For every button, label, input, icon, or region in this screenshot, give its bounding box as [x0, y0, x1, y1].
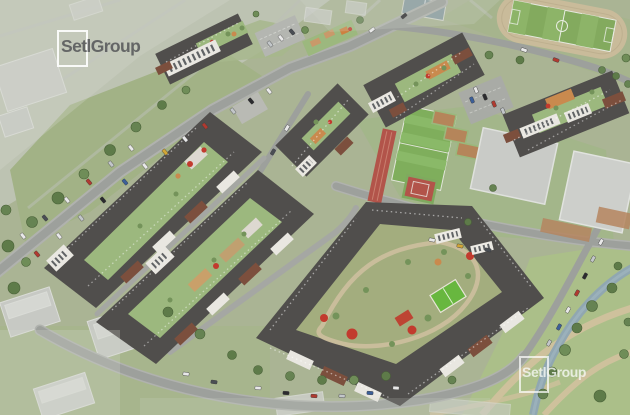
playground-red — [347, 329, 358, 340]
aerial-masterplan-render: SetlGroup SetlGroup — [0, 0, 630, 415]
masterplan-scene — [0, 0, 630, 415]
basketball-court — [403, 175, 437, 203]
